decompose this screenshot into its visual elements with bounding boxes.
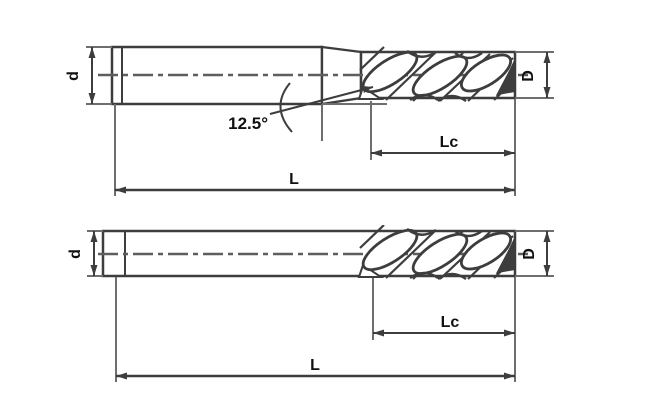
shank-diameter-label: d (67, 249, 84, 259)
technical-diagram: 12.5° d D Lc L (0, 0, 672, 415)
view-endmill-with-neck: 12.5° d D Lc L (65, 45, 554, 196)
overall-length-label: L (289, 171, 299, 188)
cutting-diameter-label: D (520, 70, 537, 82)
d-arrowhead-bottom (91, 265, 98, 276)
L-arrowhead-right (504, 187, 515, 194)
cutting-diameter-label: D (521, 248, 538, 260)
d-arrowhead-top (91, 231, 98, 242)
L-arrowhead-left (115, 187, 126, 194)
view-endmill-long-shank: d D Lc L (67, 223, 554, 382)
overall-length-label: L (310, 357, 320, 374)
d-arrowhead-bottom (89, 93, 96, 104)
D-arrowhead-bottom (544, 265, 551, 276)
shank-diameter-label: d (65, 71, 82, 81)
flute-length-label: Lc (440, 134, 459, 151)
D-arrowhead-top (544, 231, 551, 242)
flute-length-label: Lc (441, 314, 460, 331)
neck-angle-label: 12.5° (228, 114, 268, 133)
L-arrowhead-left (116, 373, 127, 380)
d-arrowhead-top (89, 47, 96, 58)
D-arrowhead-top (544, 52, 551, 63)
Lc-arrowhead-left (371, 150, 382, 157)
Lc-arrowhead-right (504, 150, 515, 157)
D-arrowhead-bottom (544, 87, 551, 98)
Lc-arrowhead-right (504, 330, 515, 337)
L-arrowhead-right (504, 373, 515, 380)
Lc-arrowhead-left (373, 330, 384, 337)
drawing-canvas: 12.5° d D Lc L (0, 0, 672, 415)
